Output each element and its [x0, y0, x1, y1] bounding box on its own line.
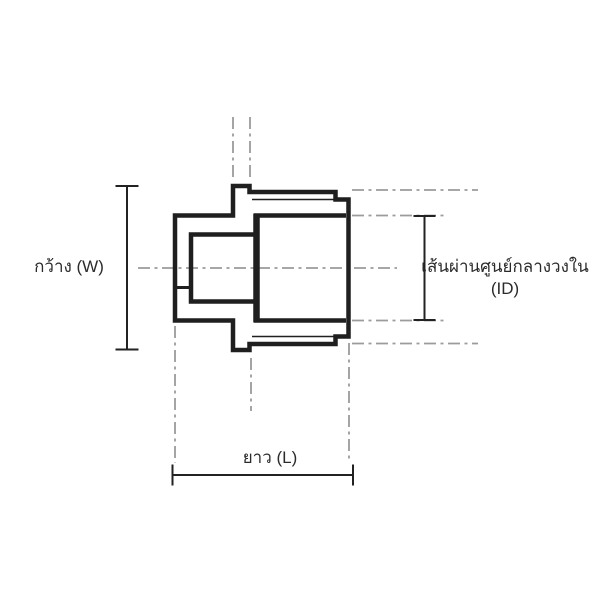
- inner-diameter-label: เส้นผ่านศูนย์กลางวงใน (ID): [417, 256, 593, 300]
- fitting-technical-drawing: [0, 0, 600, 600]
- drawing-canvas: กว้าง (W) เส้นผ่านศูนย์กลางวงใน (ID) ยาว…: [0, 0, 600, 600]
- inner-diameter-label-line1: เส้นผ่านศูนย์กลางวงใน: [417, 256, 593, 278]
- inner-diameter-label-line2: (ID): [417, 278, 593, 300]
- width-label: กว้าง (W): [9, 256, 129, 278]
- length-label: ยาว (L): [220, 447, 320, 469]
